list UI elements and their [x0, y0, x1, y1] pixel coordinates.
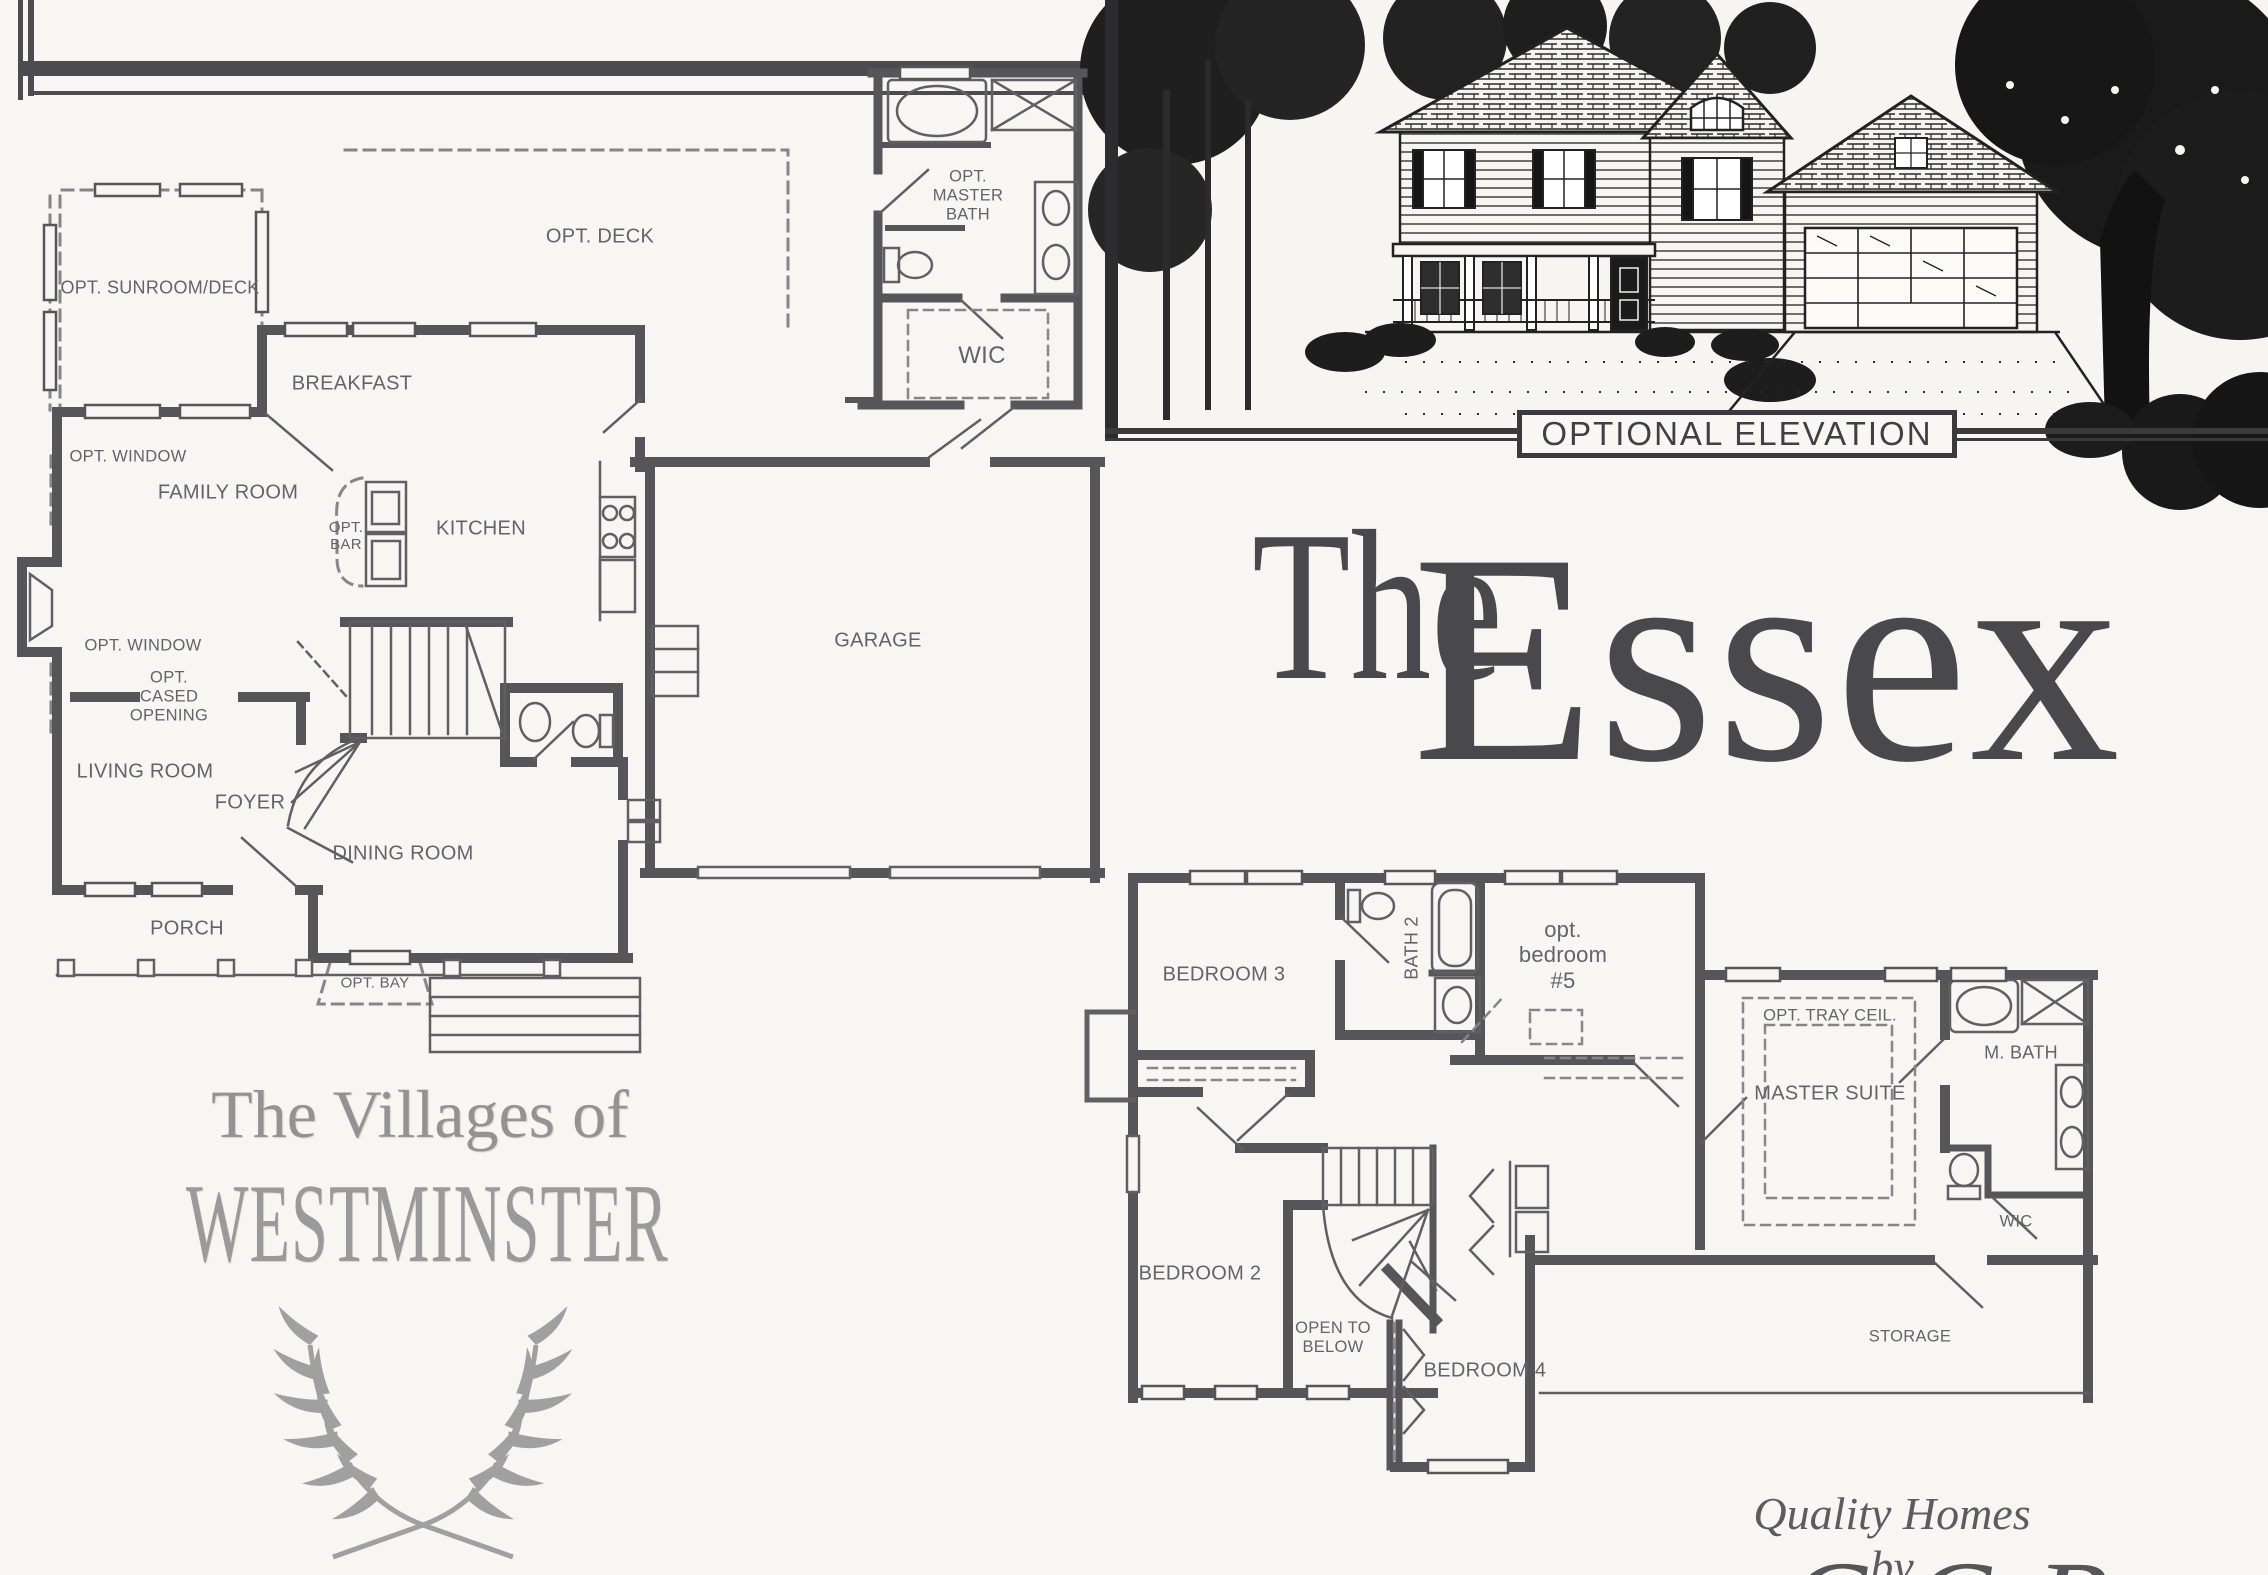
brochure-page: OPTIONAL ELEVATION	[0, 0, 2268, 1575]
label-opt-bar: OPT. BAR	[329, 519, 364, 554]
plan-title-essex: Essex	[1412, 508, 2122, 808]
community-logo-line2: WESTMINSTER	[186, 1168, 669, 1280]
room-label-opt-sunroom-deck: OPT. SUNROOM/DECK	[60, 278, 259, 299]
room-label-kitchen: KITCHEN	[436, 518, 526, 541]
room-label-bedroom-2: BEDROOM 2	[1139, 1263, 1262, 1286]
room-label-m-bath: M. BATH	[1984, 1043, 2058, 1064]
label-opt-bay: OPT. BAY	[341, 974, 410, 991]
room-label-garage: GARAGE	[834, 630, 921, 653]
builder-name-cropped: C.C.B., I	[1788, 1544, 2268, 1575]
room-label-opt-deck: OPT. DECK	[546, 226, 654, 249]
room-label-wic-floor2: WIC	[2000, 1213, 2033, 1232]
room-label-bedroom-4: BEDROOM 4	[1424, 1360, 1547, 1383]
second-floor-plan-drawing	[1080, 860, 2268, 1480]
room-label-porch: PORCH	[150, 918, 224, 941]
optional-elevation-caption: OPTIONAL ELEVATION	[1517, 410, 1957, 458]
opt-master-bath-plan	[848, 67, 1083, 448]
room-label-opt-master-bath: OPT. MASTER BATH	[933, 168, 1004, 225]
community-logo-line1: The Villages of	[210, 1075, 630, 1154]
wreath-leaves-left	[274, 1300, 381, 1523]
label-opt-cased-opening: OPT. CASED OPENING	[130, 669, 208, 726]
label-open-to-below: OPEN TO BELOW	[1295, 1319, 1371, 1357]
room-label-dining-room: DINING ROOM	[332, 843, 473, 866]
wreath-leaves-right	[465, 1300, 572, 1523]
label-opt-tray-ceiling: OPT. TRAY CEIL.	[1763, 1007, 1897, 1026]
room-label-wic-small-plan: WIC	[958, 342, 1006, 370]
room-label-master-suite: MASTER SUITE	[1754, 1083, 1905, 1106]
room-label-breakfast: BREAKFAST	[292, 373, 413, 396]
room-label-foyer: FOYER	[215, 792, 285, 815]
label-opt-window-2: OPT. WINDOW	[85, 637, 202, 656]
room-label-storage: STORAGE	[1869, 1328, 1951, 1347]
laurel-wreath-icon	[258, 1285, 588, 1565]
label-opt-window-1: OPT. WINDOW	[70, 448, 187, 467]
room-label-living-room: LIVING ROOM	[77, 761, 214, 784]
room-label-bath-2: BATH 2	[1402, 916, 1423, 979]
room-label-family-room: FAMILY ROOM	[158, 482, 298, 505]
room-label-opt-bedroom-5: opt. bedroom #5	[1519, 917, 1607, 993]
room-label-bedroom-3: BEDROOM 3	[1163, 964, 1286, 987]
